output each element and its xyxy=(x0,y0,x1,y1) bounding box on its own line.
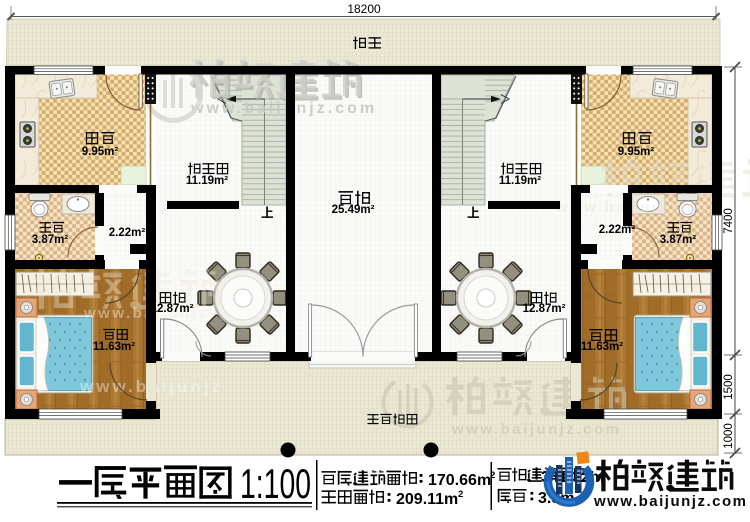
svg-text:209.11m: 209.11m xyxy=(396,491,458,508)
svg-text:11.63m²: 11.63m² xyxy=(93,341,135,353)
svg-text:www.baijunjz.com: www.baijunjz.com xyxy=(593,493,747,510)
svg-text:170.66m: 170.66m xyxy=(428,472,491,489)
svg-text:2: 2 xyxy=(490,470,495,481)
svg-text:11.63m²: 11.63m² xyxy=(581,341,623,353)
svg-text:2.22m²: 2.22m² xyxy=(109,227,146,239)
svg-text:25.49m²: 25.49m² xyxy=(332,204,375,216)
svg-text:1:100: 1:100 xyxy=(240,460,311,507)
svg-text:12.87m²: 12.87m² xyxy=(523,303,566,315)
svg-text:9.95m²: 9.95m² xyxy=(82,146,119,158)
svg-text:18200: 18200 xyxy=(347,2,381,16)
svg-text:www.baijunjz.com: www.baijunjz.com xyxy=(190,100,377,117)
svg-text:www.baijunjz.com: www.baijunjz.com xyxy=(451,421,621,438)
svg-text:1000: 1000 xyxy=(723,423,735,449)
svg-text:1500: 1500 xyxy=(723,374,735,400)
svg-text:3.87m²: 3.87m² xyxy=(32,234,69,246)
svg-text:12.87m²: 12.87m² xyxy=(151,303,194,315)
svg-text:2: 2 xyxy=(458,489,463,500)
svg-text:11.19m²: 11.19m² xyxy=(186,175,228,187)
svg-text:3.87m²: 3.87m² xyxy=(660,234,697,246)
svg-text:2.22m²: 2.22m² xyxy=(599,224,636,236)
svg-text:11.19m²: 11.19m² xyxy=(499,175,541,187)
svg-text:9.95m²: 9.95m² xyxy=(618,146,655,158)
